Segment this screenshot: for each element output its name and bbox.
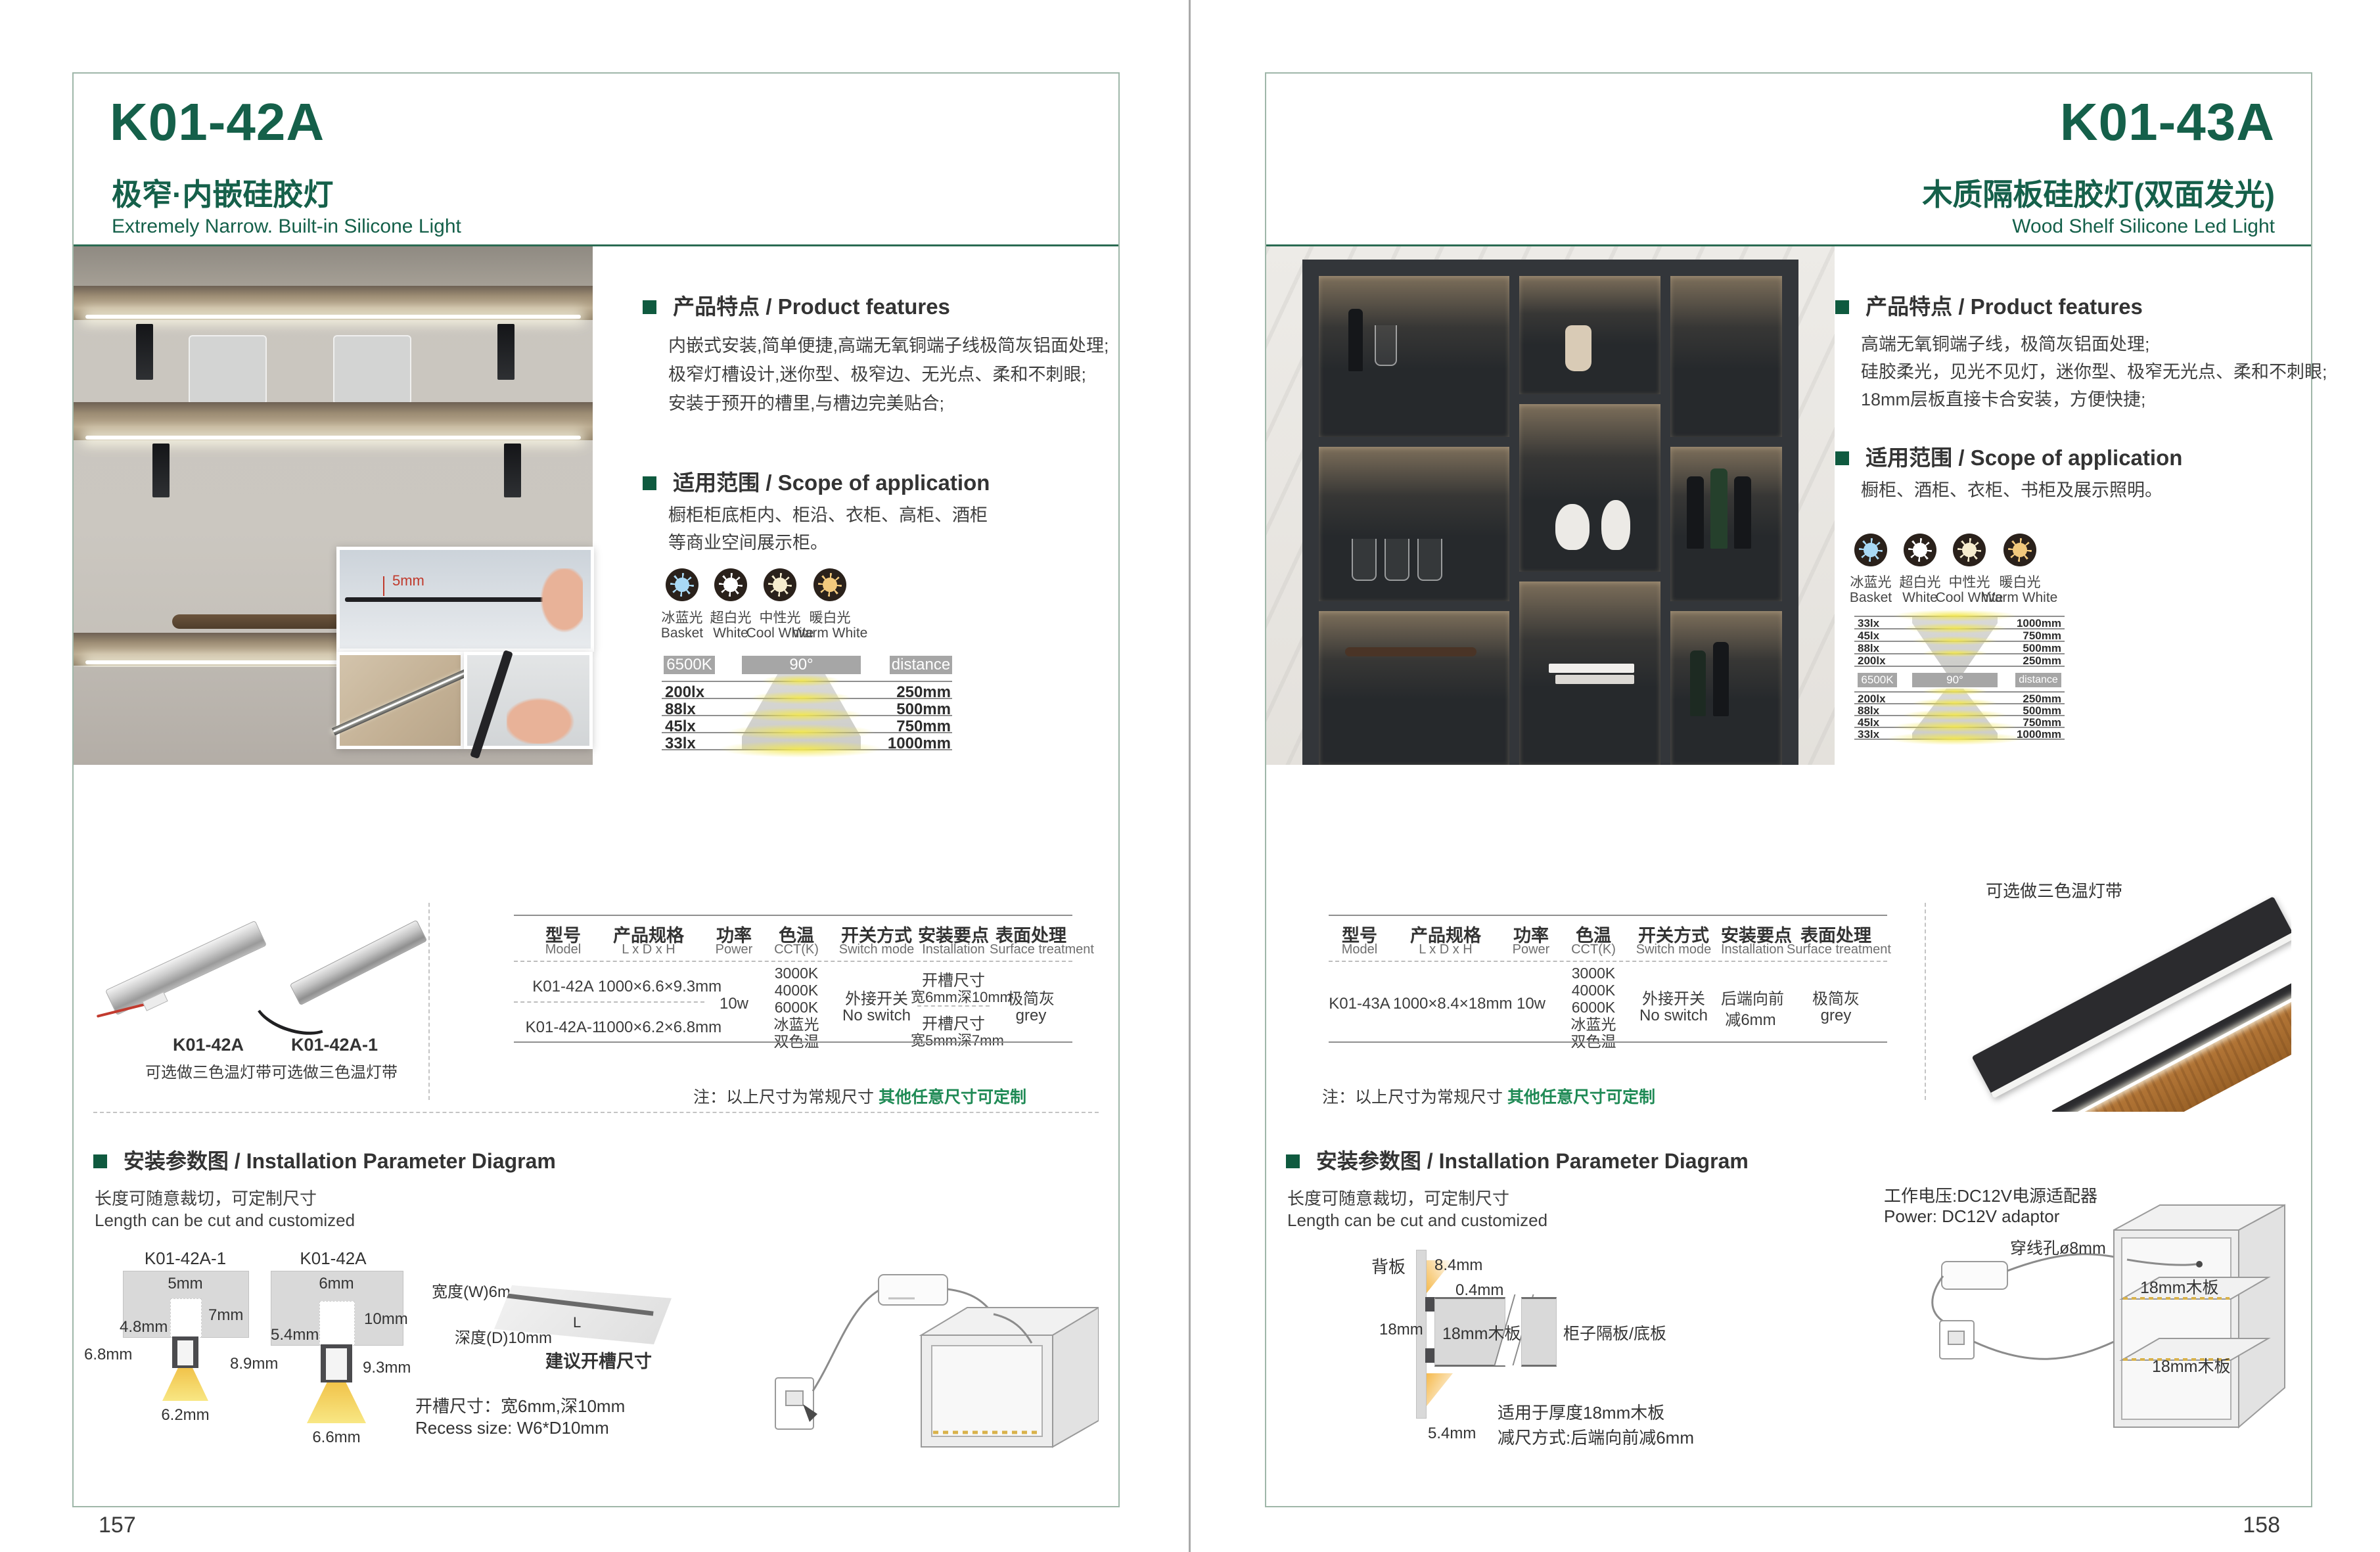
dim-18: 18mm [1379,1321,1423,1339]
col-header-en: Model [514,942,612,957]
col-header-en: Model [1329,942,1390,957]
photo-led-strip-1 [85,315,581,319]
col-header-en: Power [704,942,764,957]
chart-lux: 88lx [1858,704,1879,718]
feature-line: 硅胶柔光，见光不见灯，迷你型、极窄无光点、柔和不刺眼; [1861,357,2327,383]
chart-mm: 500mm [2009,642,2061,655]
dim-8-4: 8.4mm [1434,1256,1482,1275]
cell-install: 宽5mm深7mm [911,1029,996,1050]
cabinet-cell [1519,582,1660,765]
cell-size: 1000×8.4×18mm [1393,995,1498,1013]
section-bullet-icon [643,300,656,314]
section-bullet-icon [93,1154,107,1168]
neutral-light-icon [764,568,796,601]
recess-slot [319,1301,355,1346]
col-header-en: L x D x H [1393,942,1498,957]
light-beam [307,1382,366,1423]
features-heading: 产品特点 / Product features [643,289,950,321]
inset-profile-strip [345,597,545,602]
section-bullet-icon [1286,1154,1300,1168]
inset-5mm-dim: 5mm [392,572,424,589]
product-label: K01-42A-1 [269,1035,400,1055]
page-left: K01-42A 极窄·内嵌硅胶灯 Extremely Narrow. Built… [72,72,1120,1507]
super-white-light-icon [1904,534,1936,566]
scope-heading: 适用范围 / Scope of application [643,465,990,497]
light-pool [1912,636,1998,645]
light-beam [162,1368,208,1401]
product-photo-K01-43A [1943,895,2291,1112]
col-header-en: Surface treatment [990,942,1072,957]
wiring-cabinet-illustration [757,1256,1099,1480]
scope-heading: 适用范围 / Scope of application [1835,440,2182,472]
chart-mm: 250mm [2009,693,2061,706]
dim-body-width: 6.2mm [159,1406,212,1425]
light-pool [719,741,883,758]
chart-mm: 250mm [892,683,951,702]
page-title: K01-43A [2060,92,2275,152]
chart-mm: 500mm [892,700,951,719]
cell-install: 减6mm [1721,1007,1780,1030]
inset-led-line [333,666,478,732]
col-header-en: Installation [1721,942,1780,957]
cut-note-en: Length can be cut and customized [95,1210,355,1231]
diagram-label: K01-42A [281,1248,386,1269]
cell-surface-cn: 极简灰 [1787,986,1885,1009]
page-number-left: 157 [99,1513,136,1538]
col-header-en: Switch mode [836,942,917,957]
cell-install: 宽6mm深10mm [911,986,996,1007]
recess-size-en: Recess size: W6*D10mm [415,1418,609,1438]
ice-blue-light-icon [666,568,698,601]
spec-table: 型号 Model 产品规格 L x D x H 功率 Power 色温 CCT(… [1329,915,1887,1043]
recess-size-cn: 开槽尺寸：宽6mm,深10mm [415,1393,625,1417]
super-white-light-icon [714,568,747,601]
page-title: K01-42A [110,92,325,152]
light-pool [1892,721,2017,733]
glass [1352,539,1377,581]
page-right: K01-43A 木质隔板硅胶灯(双面发光) Wood Shelf Silicon… [1265,72,2312,1507]
chart-lux: 33lx [1858,728,1879,741]
col-header-en: Power [1505,942,1557,957]
warm-white-light-icon [813,568,846,601]
inset-dim-arrow [383,576,384,596]
section-bullet-icon [1835,451,1849,465]
chart-mm: 1000mm [2009,617,2061,630]
wine-bottle [1710,468,1728,549]
scope-line: 橱柜、酒柜、衣柜、书柜及展示照明。 [1861,476,2163,501]
cabinet-cell [1670,276,1782,437]
cell-switch-en: No switch [1631,1007,1716,1025]
table-top-rule [514,915,1072,916]
recess-groove [506,1293,653,1315]
clip-bottom [1425,1348,1434,1363]
cabinet-cell [1519,404,1660,572]
install-heading: 安装参数图 / Installation Parameter Diagram [1286,1145,1749,1175]
light-pool [1922,649,1988,657]
chart-lux: 45lx [665,718,696,736]
row-divider [917,1005,990,1007]
chart-lux: 33lx [665,735,696,753]
back-panel-label: 背板 [1371,1254,1406,1278]
page-subtitle-en: Extremely Narrow. Built-in Silicone Ligh… [112,216,461,238]
diagram-label: K01-42A-1 [133,1248,238,1269]
dim-slot-depth: 7mm [208,1306,243,1325]
product-photo-K01-42A [100,915,264,1030]
light-pool [739,708,863,722]
photo-led-strip-3 [85,660,356,664]
cell-switch-cn: 外接开关 [836,986,917,1009]
cabinet-wiring-illustration [1917,1191,2298,1453]
product-label: K01-42A [143,1035,274,1055]
chart-distance-chip: distance [890,656,952,674]
cut-note-cn: 长度可随意裁切，可定制尺寸 [95,1185,317,1210]
dim-body-height: 8.9mm [230,1355,278,1373]
product-note: 可选做三色温灯带 [143,1059,274,1082]
recess-hint-label: 建议开槽尺寸 [545,1347,652,1373]
wine-bottle [1734,476,1751,549]
feature-line: 高端无氧铜端子线，极简灰铝面处理; [1861,330,2150,355]
dim-body-height-2: 9.3mm [363,1359,411,1377]
light-label-en: Warm White [781,626,879,641]
hero-photo-wood-cabinet [1266,246,1835,765]
cell-surface-cn: 极简灰 [990,986,1072,1009]
light-label-cn: 暖白光 [1971,572,2069,591]
recess-depth-label: 深度(D)10mm [455,1325,552,1348]
product-photo-K01-42A-1 [264,915,409,1030]
cell-surface-en: grey [990,1007,1072,1025]
wine-bottle [1690,650,1706,716]
section-divider-dashed [93,1112,1099,1113]
dim-body-height: 6.8mm [84,1346,132,1364]
chart-mm: 750mm [892,718,951,736]
custom-size-note: 注：以上尺寸为常规尺寸 其他任意尺寸可定制 [1322,1084,1655,1108]
fit-note-2: 减尺方式:后端向前减6mm [1498,1425,1694,1449]
photo-wood-tray [172,614,350,629]
col-header-en: CCT(K) [764,942,829,957]
cell-power: 10w [1505,995,1557,1013]
glass [1385,539,1409,581]
books [1549,664,1634,673]
wine-bottle [1713,642,1729,716]
photo-bracket [504,444,521,497]
chart-angle-chip: 90° [742,656,861,674]
dim-lip: 4.8mm [120,1318,168,1336]
dim-lip: 5.4mm [271,1326,319,1344]
feature-line: 极窄灯槽设计,迷你型、极窄边、无光点、柔和不刺眼; [668,360,1086,386]
profile-section [172,1336,198,1368]
shelf-label-2: 18mm木板 [2152,1354,2230,1377]
cut-note-en: Length can be cut and customized [1287,1210,1547,1231]
section-bullet-icon [1835,300,1849,314]
chart-lux: 45lx [1858,629,1879,643]
section-bullet-icon [643,476,656,490]
light-pool [1902,710,2007,720]
light-pool [1892,610,2017,622]
light-pool [1922,687,1988,695]
books [1555,675,1634,684]
cabinet-cell [1319,276,1509,437]
spec-table: 型号 Model 产品规格 L x D x H 功率 Power 色温 CCT(… [514,915,1072,1043]
column-divider [428,903,430,1100]
cell-size: 1000×6.6×9.3mm [598,978,703,996]
feature-line: 安装于预开的槽里,与槽边完美贴合; [668,389,944,415]
chart-lux: 33lx [1858,617,1879,630]
header-rule-dashed [1329,961,1887,962]
light-pool [1912,698,1998,708]
board-label: 18mm木板 [1442,1321,1521,1344]
rabbit-figurine [1555,504,1590,550]
chart-mm: 1000mm [885,735,951,753]
vase [1565,325,1591,371]
chart-mm: 750mm [2009,629,2061,643]
light-pool [1902,623,2007,633]
column-divider [1925,903,1926,1100]
photo-ceiling [74,246,593,289]
board-section-right [1521,1297,1557,1367]
light-pool [1886,732,2024,745]
cell-install: 后端向前 [1721,986,1780,1009]
photo-container-box [333,335,411,405]
cell-surface-en: grey [1787,1007,1885,1025]
chart-lux: 200lx [1858,654,1886,668]
fit-note-1: 适用于厚度18mm木板 [1498,1400,1664,1424]
page-divider [1189,0,1191,1552]
inset-hand [537,568,583,637]
bottle [1348,309,1363,371]
photo-led-strip-2 [85,436,581,440]
photo-bracket [497,324,515,380]
dim-slot-width: 6mm [304,1275,369,1293]
photo-shelf-2 [74,402,593,440]
install-heading: 安装参数图 / Installation Parameter Diagram [93,1145,556,1175]
glass [1375,325,1397,366]
chart-lux: 45lx [1858,716,1879,729]
cabinet-cell [1319,611,1509,765]
cell-switch-cn: 外接开关 [1631,986,1716,1009]
cell-model: K01-43A [1329,995,1390,1013]
page-subtitle-cn: 木质隔板硅胶灯(双面发光) [1922,171,2275,214]
feature-line: 18mm层板直接卡合安装，方便快捷; [1861,385,2146,411]
chart-distance-chip: distance [2015,673,2061,687]
light-label-en: Warm White [1971,590,2069,606]
page-subtitle-cn: 极窄·内嵌硅胶灯 [112,171,333,214]
recess-slot [170,1298,202,1338]
inset-photo-wood-panel [336,652,464,749]
col-header-en: CCT(K) [1561,942,1626,957]
cell-size: 1000×6.2×6.8mm [598,1018,703,1037]
inset-photo-5mm-profile: 5mm [336,547,594,652]
page-number-right: 158 [2155,1513,2280,1538]
chart-angle-chip: 90° [1912,673,1998,687]
chart-mm: 750mm [2009,716,2061,729]
chart-cct-chip: 6500K [664,656,715,674]
cell-cct: 3000K 4000K 6000K 冰蓝光 双色温 [764,965,829,1050]
light-label-cn: 暖白光 [781,607,879,627]
tray [1345,647,1476,656]
photo-container-box [189,335,267,405]
dim-slot-width: 5mm [152,1275,218,1293]
page-subtitle-en: Wood Shelf Silicone Led Light [2012,216,2275,238]
cut-note-cn: 长度可随意裁切，可定制尺寸 [1287,1185,1509,1210]
ice-blue-light-icon [1854,534,1887,566]
light-wedge-bottom [1427,1373,1453,1406]
chart-lux: 200lx [1858,693,1886,706]
wine-bottle [1687,476,1704,549]
inset-hand [507,695,579,744]
inset-photo-hand-strip [464,652,593,749]
warm-white-light-icon [2003,534,2036,566]
rabbit-figurine [1601,500,1630,550]
neutral-light-icon [1953,534,1986,566]
dim-slot-depth: 10mm [364,1310,408,1329]
chart-mm: 1000mm [2009,728,2061,741]
cell-power: 10w [704,995,764,1013]
glass [1417,539,1442,581]
table-top-rule [1329,915,1887,916]
chart-mm: 250mm [2009,654,2061,668]
chart-mm: 500mm [2009,704,2061,718]
dim-body-width: 6.6mm [307,1428,366,1447]
dim-5-4: 5.4mm [1428,1425,1476,1443]
profile-section [321,1344,352,1382]
chart-lux: 88lx [665,700,696,719]
header-rule-dashed [514,961,1072,962]
col-header-en: L x D x H [612,942,685,957]
cable-hole-label: 穿线孔ø8mm [2010,1235,2106,1259]
product-note: 可选做三色温灯带 [269,1059,400,1082]
chart-lux: 200lx [665,683,704,702]
cell-switch-en: No switch [836,1007,917,1025]
length-label: L [573,1314,581,1331]
scope-line: 等商业空间展示柜。 [668,528,828,554]
cabinet-cell [1319,447,1509,601]
col-header-en: Installation [917,942,990,957]
col-header-en: Surface treatment [1787,942,1885,957]
scope-line: 橱柜柜底柜内、柜沿、衣柜、高柜、酒柜 [668,501,988,526]
cell-cct: 3000K 4000K 6000K 冰蓝光 双色温 [1561,965,1626,1050]
table-bottom-rule [514,1041,1072,1043]
divider-label: 柜子隔板/底板 [1563,1321,1666,1344]
shelf-label-1: 18mm木板 [2140,1275,2218,1298]
chart-cct-chip: 6500K [1858,673,1897,687]
chart-lux: 88lx [1858,642,1879,655]
features-heading: 产品特点 / Product features [1835,289,2143,321]
light-pool [727,724,875,740]
row-divider [514,1001,704,1003]
feature-line: 内嵌式安装,简单便捷,高端无氧铜端子线极简灰铝面处理; [668,331,1109,357]
clip-top [1425,1297,1434,1312]
photo-bracket [152,444,170,497]
custom-size-note: 注：以上尺寸为常规尺寸 其他任意尺寸可定制 [693,1084,1026,1108]
light-pool [750,691,852,704]
col-header-en: Switch mode [1631,942,1716,957]
light-pool [762,675,840,687]
table-bottom-rule [1329,1041,1887,1043]
photo-bracket [136,324,153,380]
catalog-spread: K01-42A 极窄·内嵌硅胶灯 Extremely Narrow. Built… [0,0,2380,1552]
aluminum-profile [105,921,267,1016]
